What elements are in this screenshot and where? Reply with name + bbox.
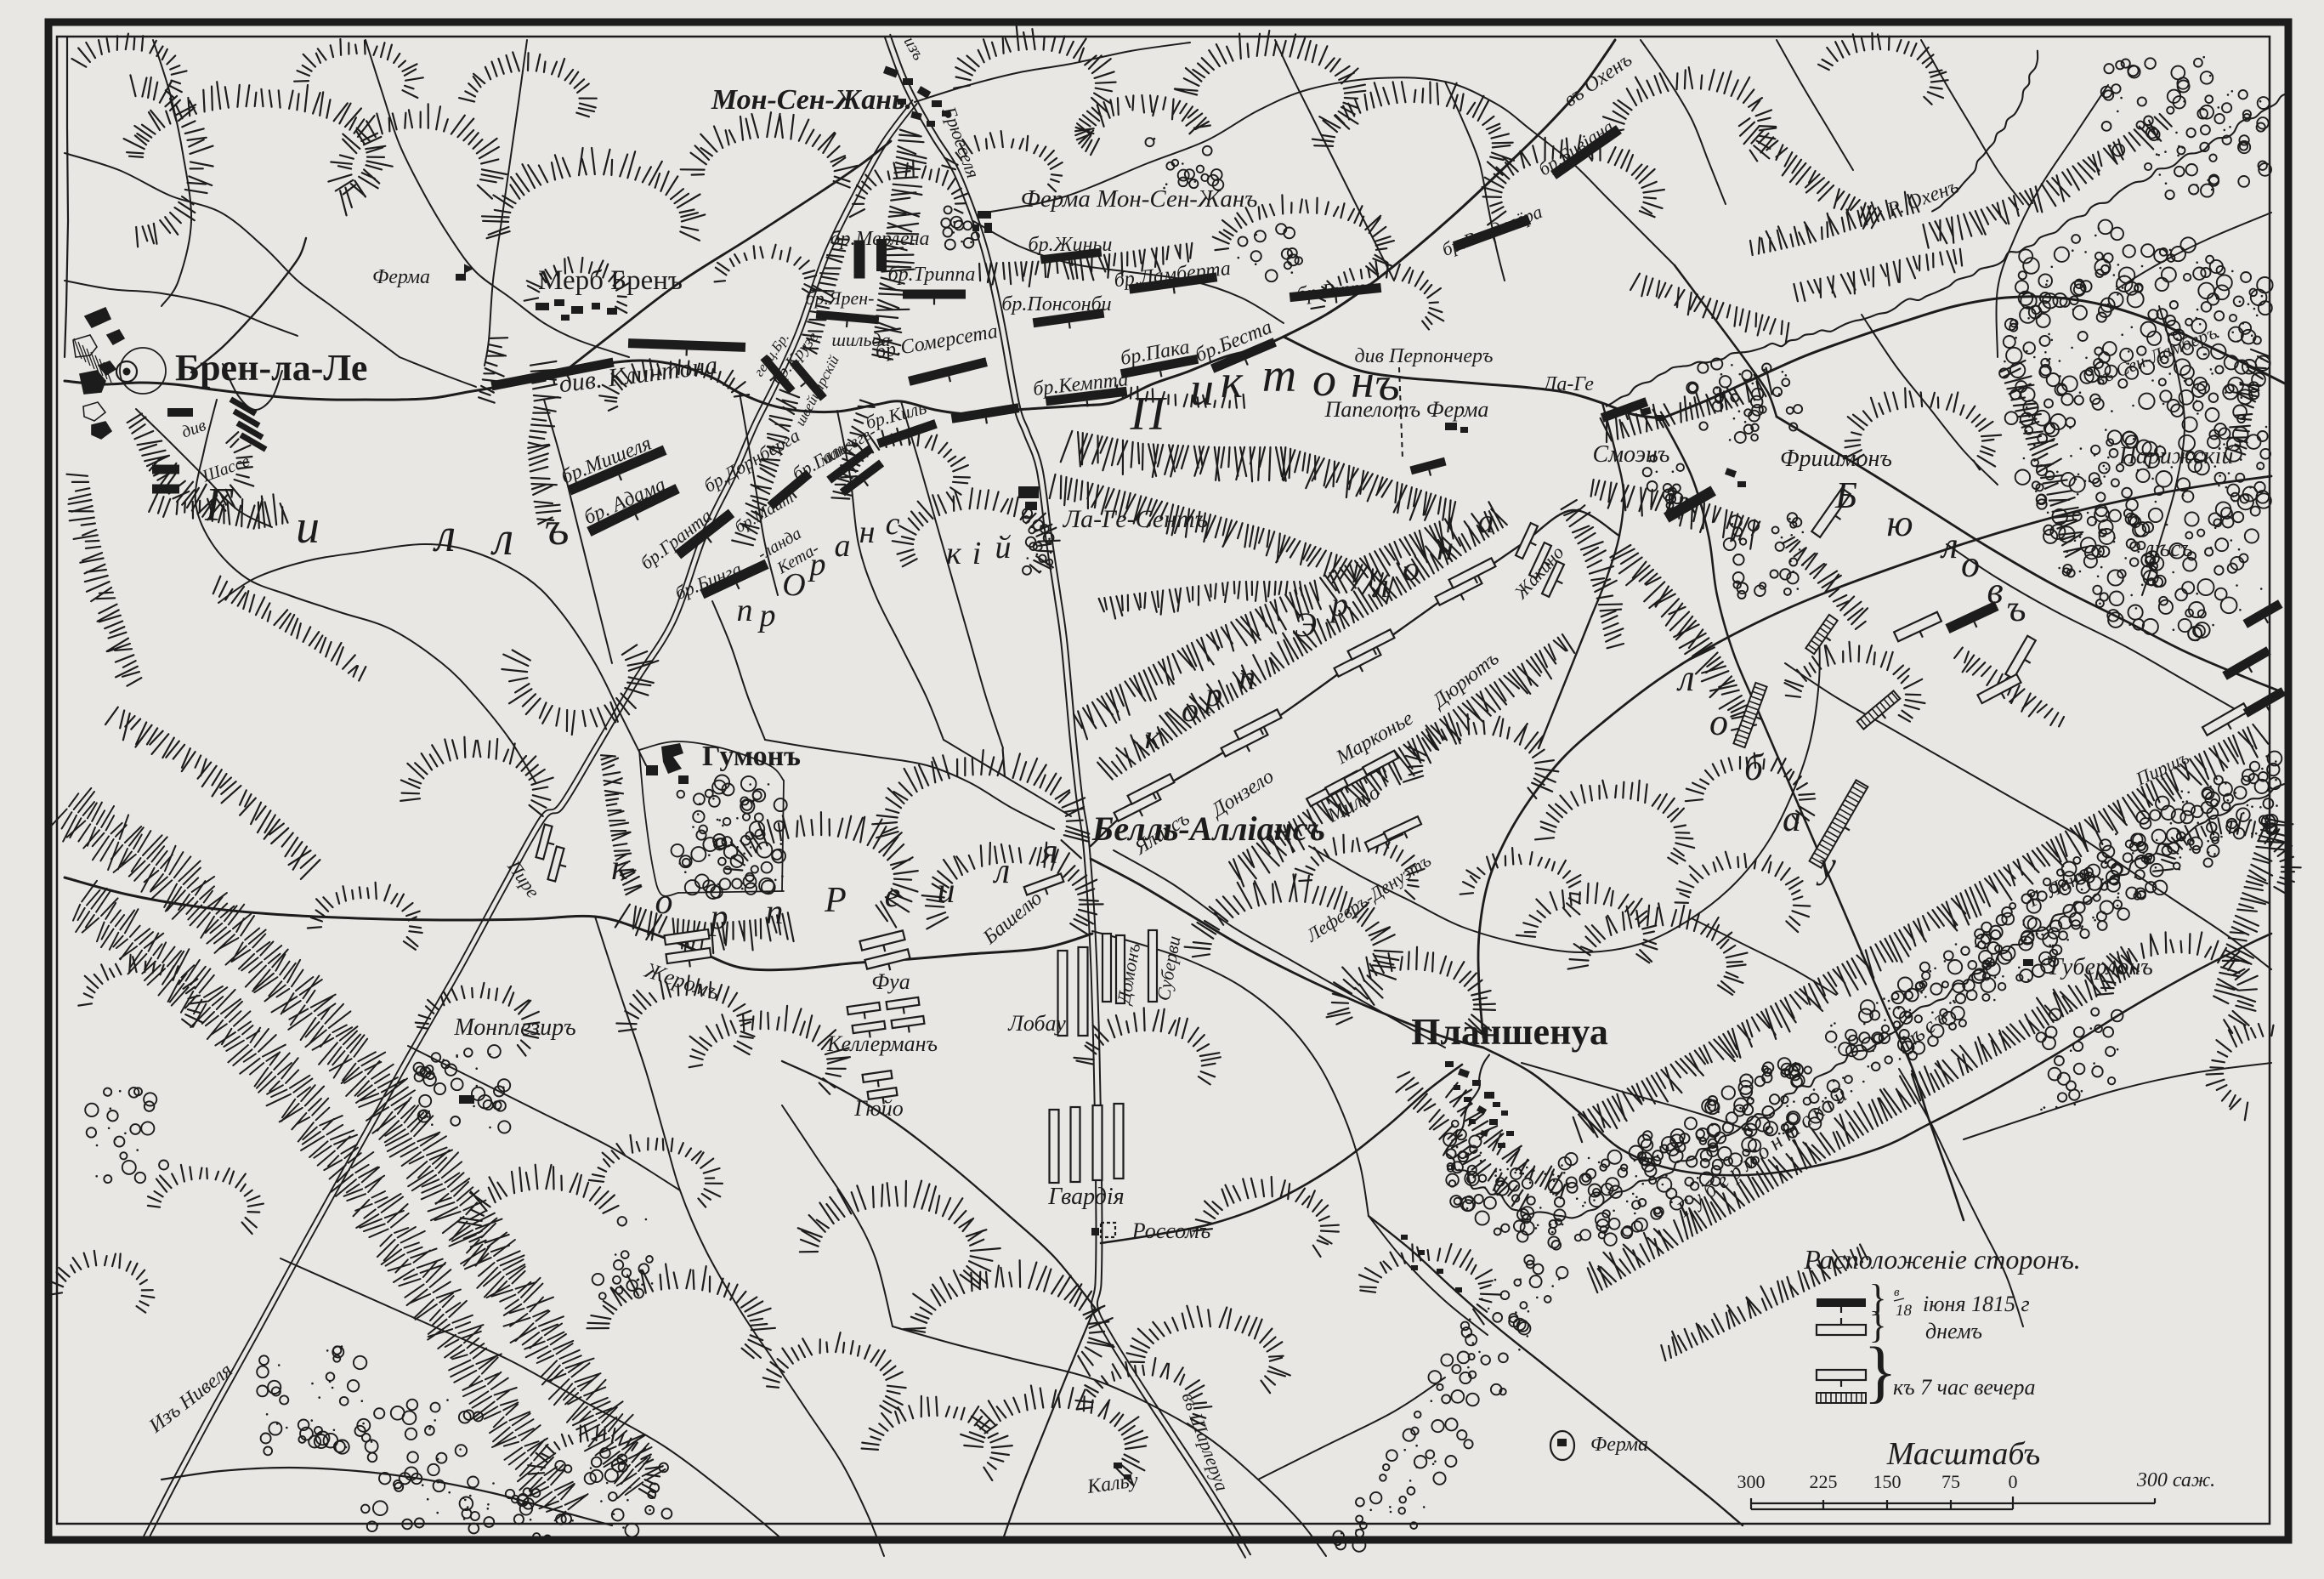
svg-text:б: б [1744,747,1765,788]
svg-text:р: р [1203,675,1222,713]
svg-text:бр.Ярен-: бр.Ярен- [805,287,874,309]
svg-text:а: а [1783,798,1801,839]
svg-text:в: в [1987,570,2003,611]
svg-text:п: п [737,593,753,628]
svg-text:Брен-ла-Ле: Брен-ла-Ле [175,347,367,389]
svg-text:бр.Мерлена: бр.Мерлена [830,228,929,250]
svg-text:Лобау: Лобау [1007,1011,1066,1036]
svg-text:Гюйо: Гюйо [853,1096,903,1121]
svg-text:п: п [1239,658,1256,696]
svg-text:лѣсъ: лѣсъ [2142,536,2192,562]
svg-text:о: о [1961,543,1980,585]
svg-text:п: п [766,893,784,932]
svg-text:е: е [885,876,901,915]
svg-text:къ 7 час вечера: къ 7 час вечера [1893,1375,2036,1400]
svg-text:0: 0 [2009,1471,2018,1492]
svg-text:у: у [1816,844,1836,886]
svg-text:Губерлонъ: Губерлонъ [2049,954,2153,980]
svg-text:й: й [995,530,1012,565]
svg-text:л: л [1372,566,1388,605]
svg-text:ъ: ъ [2007,588,2026,629]
svg-text:Мон-Сен-Жань.: Мон-Сен-Жань. [711,84,912,116]
svg-text:і: і [972,536,982,571]
svg-text:о: о [1182,690,1199,729]
svg-text:л: л [1939,525,1958,566]
svg-text:а: а [835,528,851,564]
svg-text:т: т [1262,349,1296,402]
svg-text:300: 300 [1737,1471,1766,1492]
svg-text:ъ: ъ [544,503,569,555]
svg-text:л: л [433,509,456,562]
svg-text:бр.Понсонби: бр.Понсонби [1001,293,1111,315]
svg-text:Фуа: Фуа [871,969,910,994]
svg-text:я: я [1040,832,1058,872]
svg-text:р: р [1329,585,1348,623]
svg-text:Фришмонъ: Фришмонъ [1780,446,1892,472]
svg-text:150: 150 [1873,1471,1902,1492]
svg-text:бр.Жиньи: бр.Жиньи [1029,234,1113,256]
svg-text:л: л [993,852,1010,891]
svg-text:225: 225 [1810,1471,1838,1492]
svg-text:Папелотъ Ферма: Папелотъ Ферма [1324,397,1489,422]
svg-text:о: о [655,883,673,922]
svg-text:Ла-Ге-Сентъ: Ла-Ге-Сентъ [1063,505,1208,533]
svg-text:Ферма Мон-Сен-Жанъ: Ферма Мон-Сен-Жанъ [1021,185,1258,213]
svg-text:р: р [757,598,776,633]
svg-text:л: л [1675,657,1694,699]
svg-text:Монплезиръ: Монплезиръ [453,1014,575,1041]
svg-text:к: к [1145,718,1161,756]
svg-text:и: и [296,501,320,554]
svg-text:Р: Р [824,881,847,920]
svg-text:Расположеніе сторонъ.: Расположеніе сторонъ. [1803,1244,2081,1275]
svg-text:в: в [1894,1286,1900,1299]
svg-text:Ферма: Ферма [372,266,430,288]
svg-text:ю: ю [1886,503,1913,544]
svg-text:к: к [946,536,962,571]
svg-text:и: и [938,872,955,911]
svg-text:Белль-Аллiансъ: Белль-Аллiансъ [1091,809,1325,848]
svg-text:н: н [859,514,876,550]
svg-text:Россомъ: Россомъ [1131,1218,1210,1243]
svg-text:Смоэнъ: Смоэнъ [1593,441,1670,468]
svg-text:к: к [1221,355,1244,408]
svg-text:Парижскій: Парижскій [2118,443,2234,469]
svg-text:н: н [1437,529,1454,567]
svg-text:див Перпончеръ: див Перпончеръ [1354,345,1493,367]
svg-text:Б: Б [1834,474,1857,516]
svg-text:днемъ: днемъ [1925,1319,1982,1343]
svg-text:П: П [1130,388,1168,440]
svg-text:Келлерманъ: Келлерманъ [826,1031,938,1056]
svg-text:Планшенуа: Планшенуа [1411,1011,1608,1053]
svg-text:бр.Триппа: бр.Триппа [888,264,976,286]
svg-text:и: и [1190,363,1214,416]
svg-text:Мерб Бренъ: Мерб Бренъ [538,265,683,296]
svg-text:іюня 1815 г: іюня 1815 г [1923,1292,2030,1316]
svg-text:р: р [708,898,728,937]
svg-text:75: 75 [1941,1471,1960,1492]
svg-text:Гвардія: Гвардія [1047,1184,1124,1210]
svg-text:о: о [1709,701,1728,743]
svg-text:Масштабъ: Масштабъ [1886,1436,2040,1472]
svg-text:300 саж.: 300 саж. [2136,1469,2215,1491]
svg-text:}: } [1863,1332,1896,1410]
svg-text:Гумонъ: Гумонъ [702,741,801,772]
svg-text:Ла-Ге: Ла-Ге [1542,373,1594,395]
svg-text:18: 18 [1896,1302,1913,1320]
svg-text:а: а [1477,502,1494,540]
svg-text:Ферма: Ферма [1590,1434,1648,1456]
svg-text:с: с [886,506,900,542]
svg-text:Г: Г [204,479,234,531]
svg-text:к: к [611,849,628,888]
svg-text:о: о [1403,549,1420,588]
svg-text:л: л [490,513,513,565]
svg-text:Э: Э [1295,605,1317,644]
